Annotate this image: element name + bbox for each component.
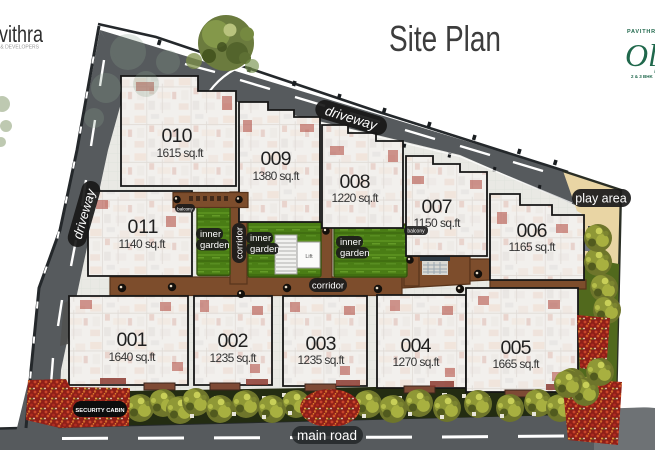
svg-text:Site Plan: Site Plan <box>389 18 501 59</box>
svg-text:1235 sq.ft: 1235 sq.ft <box>298 353 346 367</box>
svg-text:corridor: corridor <box>312 281 344 292</box>
svg-text:010: 010 <box>162 125 193 147</box>
svg-text:1165 sq.ft: 1165 sq.ft <box>509 240 557 254</box>
svg-text:005: 005 <box>501 337 532 359</box>
svg-text:1665 sq.ft: 1665 sq.ft <box>493 357 541 371</box>
svg-text:1380 sq.ft: 1380 sq.ft <box>253 169 301 183</box>
svg-text:Lift: Lift <box>305 254 313 260</box>
svg-text:1140 sq.ft: 1140 sq.ft <box>119 237 167 251</box>
svg-text:2 & 3 BHK: 2 & 3 BHK <box>631 74 654 79</box>
svg-text:RS & DEVELOPERS: RS & DEVELOPERS <box>0 45 40 51</box>
svg-text:garden: garden <box>340 248 370 259</box>
svg-text:008: 008 <box>340 171 371 193</box>
svg-text:garden: garden <box>250 244 280 255</box>
svg-text:garden: garden <box>200 240 230 251</box>
svg-text:main road: main road <box>297 428 357 443</box>
svg-text:balcony: balcony <box>177 207 194 212</box>
svg-text:1220 sq.ft: 1220 sq.ft <box>332 191 380 205</box>
svg-text:1640 sq.ft: 1640 sq.ft <box>109 350 157 364</box>
svg-text:006: 006 <box>517 220 548 242</box>
svg-text:002: 002 <box>218 330 249 352</box>
svg-text:004: 004 <box>401 335 432 357</box>
svg-text:1150 sq.ft: 1150 sq.ft <box>414 216 462 230</box>
svg-text:Oly: Oly <box>625 37 655 73</box>
svg-text:007: 007 <box>422 196 453 218</box>
svg-text:play area: play area <box>575 192 626 206</box>
svg-text:inner: inner <box>200 229 221 240</box>
svg-text:1235 sq.ft: 1235 sq.ft <box>210 351 258 365</box>
svg-text:001: 001 <box>117 329 148 351</box>
svg-text:inner: inner <box>340 237 361 248</box>
svg-text:1615 sq.ft: 1615 sq.ft <box>157 146 205 160</box>
svg-text:011: 011 <box>128 216 159 238</box>
svg-text:SECURITY CABIN: SECURITY CABIN <box>75 408 124 414</box>
svg-text:inner: inner <box>250 233 271 244</box>
svg-text:avithra: avithra <box>0 21 43 47</box>
svg-text:corridor: corridor <box>235 227 246 259</box>
svg-text:009: 009 <box>261 148 292 170</box>
svg-text:003: 003 <box>306 333 337 355</box>
svg-text:1270 sq.ft: 1270 sq.ft <box>393 355 441 369</box>
svg-text:PAVITHRA: PAVITHRA <box>627 29 655 35</box>
